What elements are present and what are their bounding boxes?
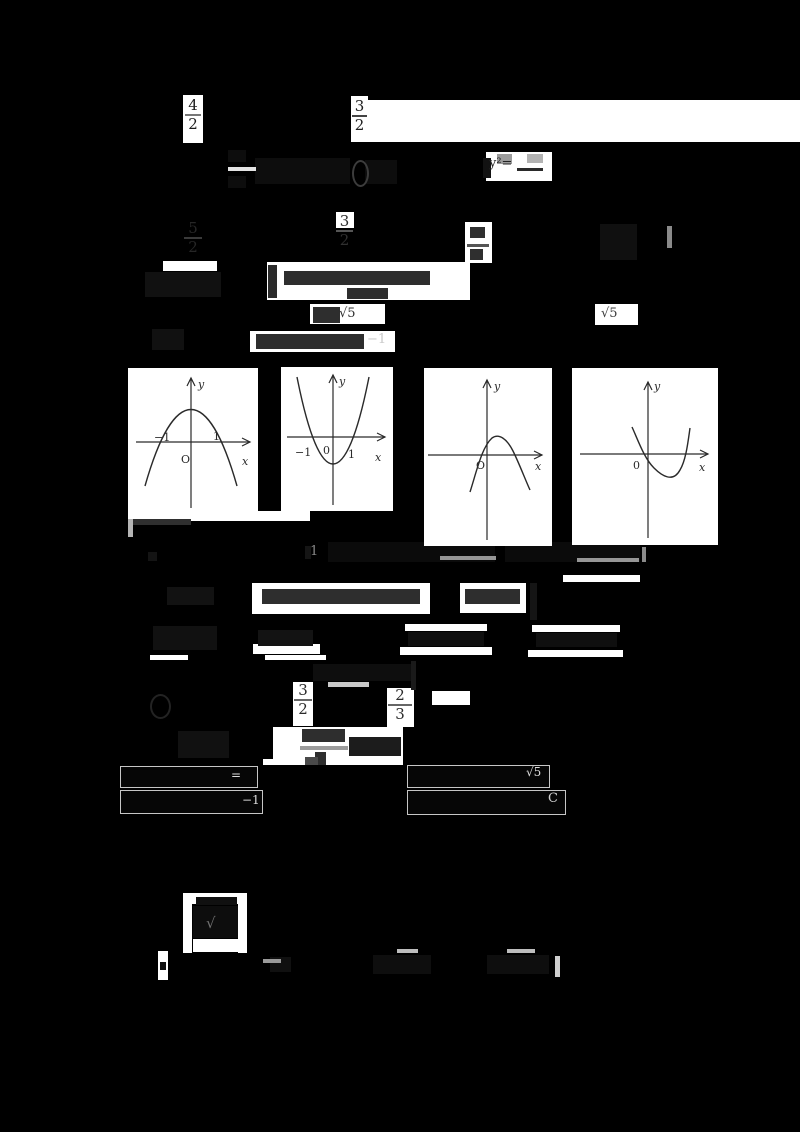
- paper-block: [183, 893, 192, 953]
- illegible-text-smudge: [487, 955, 549, 974]
- paper-block: [432, 691, 470, 705]
- illegible-text-smudge: [302, 729, 345, 742]
- fraction-denominator: 2: [298, 700, 308, 718]
- illegible-text-smudge: [600, 224, 637, 260]
- math-fragment: √: [206, 916, 216, 931]
- illegible-text-smudge: [470, 227, 485, 238]
- ink-mark: [577, 558, 639, 562]
- paper-block: [193, 939, 243, 952]
- axis-label-1: 1: [348, 448, 355, 461]
- axis-label-0: 0: [633, 459, 640, 472]
- math-fragment: √5: [601, 307, 618, 320]
- illegible-text-smudge: [160, 962, 166, 970]
- illegible-text-smudge: [536, 633, 617, 647]
- ink-mark: [467, 244, 489, 247]
- illegible-text-smudge: [313, 664, 413, 681]
- illegible-text-smudge: [255, 158, 350, 184]
- paper-block: [405, 624, 487, 631]
- fraction-3-over-2: 32: [294, 683, 312, 717]
- illegible-text-smudge: [228, 176, 246, 188]
- illegible-text-smudge: [178, 731, 229, 758]
- ink-mark: [517, 168, 543, 171]
- fraction-denominator: 2: [355, 116, 365, 134]
- graph-option-3: yxO: [424, 368, 552, 546]
- axis-label-y: y: [338, 375, 346, 388]
- math-fragment: −1: [367, 333, 386, 346]
- paper-block: [265, 655, 326, 660]
- ink-mark: [667, 226, 672, 248]
- illegible-text-smudge: [228, 150, 246, 162]
- ink-mark: [305, 757, 318, 765]
- fraction-3-over-2: 32: [336, 214, 353, 248]
- illegible-text-smudge: [470, 249, 483, 260]
- axis-label-−1: −1: [295, 446, 311, 459]
- ink-mark: [397, 949, 418, 953]
- illegible-text-smudge: [262, 589, 420, 604]
- axis-label-0: 0: [323, 444, 330, 457]
- axis-label-x: x: [375, 451, 382, 464]
- circle-mark: [352, 160, 369, 187]
- ink-mark: [555, 956, 560, 977]
- illegible-text-smudge: [145, 272, 221, 297]
- illegible-text-smudge: [530, 583, 537, 620]
- paper-block: [150, 655, 188, 660]
- math-fragment: −1: [242, 794, 260, 806]
- math-fragment: 1: [310, 545, 318, 558]
- illegible-text-smudge: [349, 737, 401, 756]
- illegible-text-smudge: [153, 626, 217, 650]
- illegible-text-smudge: [284, 271, 430, 285]
- paper-block: [532, 625, 620, 632]
- ink-mark: [527, 154, 543, 163]
- illegible-text-smudge: [347, 288, 388, 299]
- axis-label-O: O: [476, 459, 485, 472]
- fraction-denominator: 2: [188, 115, 198, 133]
- fraction-denominator: 2: [188, 238, 198, 256]
- math-fragment: C: [548, 792, 558, 805]
- axis-label-x: x: [699, 461, 706, 474]
- axis-label-y: y: [493, 380, 501, 393]
- paper-block: [263, 759, 390, 765]
- ink-mark: [440, 556, 496, 560]
- curve-cubic_min: [632, 427, 690, 477]
- ink-mark: [228, 167, 256, 171]
- ink-mark: [328, 682, 369, 687]
- illegible-text-smudge: [365, 160, 397, 184]
- illegible-text-smudge: [313, 307, 340, 323]
- fraction-numerator: 3: [340, 212, 350, 230]
- math-fragment: √5: [526, 766, 541, 778]
- answer-highlight-box: [407, 790, 566, 815]
- fraction-numerator: 3: [298, 681, 308, 699]
- paper-block: [528, 650, 623, 657]
- illegible-text-smudge: [268, 265, 277, 298]
- axis-label-1: 1: [213, 430, 220, 443]
- paper-block: [163, 261, 217, 271]
- graph-option-4: yx0: [572, 368, 718, 545]
- fraction-denominator: 3: [395, 705, 405, 723]
- circle-mark: [150, 694, 171, 719]
- fraction-2-over-3: 23: [388, 688, 412, 722]
- paper-block: [367, 100, 800, 142]
- page: 423252323223y²=√5√5−11=−1√5C√yxO−11yx−10…: [0, 0, 800, 1132]
- ink-mark: [642, 547, 646, 562]
- illegible-text-smudge: [196, 897, 237, 905]
- axis-label-y: y: [653, 380, 661, 393]
- axis-label-O: O: [181, 453, 190, 466]
- graph-option-1: yxO−11: [128, 368, 258, 519]
- ink-mark: [263, 959, 281, 963]
- illegible-text-smudge: [152, 329, 184, 350]
- illegible-text-smudge: [373, 955, 431, 974]
- ink-mark: [300, 746, 348, 750]
- illegible-text-smudge: [258, 630, 313, 646]
- illegible-text-smudge: [167, 587, 214, 605]
- fraction-numerator: 2: [395, 686, 405, 704]
- fraction-numerator: 3: [355, 97, 365, 115]
- illegible-text-smudge: [256, 334, 364, 349]
- graph-option-2: yx−101: [281, 367, 393, 511]
- axis-label-x: x: [535, 460, 542, 473]
- axis-label-y: y: [197, 378, 205, 391]
- axis-label-x: x: [242, 455, 249, 468]
- illegible-text-smudge: [148, 552, 157, 561]
- math-fragment: y²=: [489, 157, 512, 170]
- illegible-text-smudge: [408, 632, 484, 646]
- axis-label-−1: −1: [154, 431, 170, 444]
- illegible-text-smudge: [411, 661, 416, 690]
- fraction-4-over-2: 42: [185, 98, 201, 132]
- fraction-numerator: 5: [188, 219, 198, 237]
- math-fragment: =: [231, 769, 241, 781]
- fraction-3-over-2: 32: [352, 99, 367, 133]
- fraction-numerator: 4: [188, 96, 198, 114]
- illegible-text-smudge: [465, 589, 520, 604]
- ink-mark: [507, 949, 535, 953]
- fraction-denominator: 2: [340, 231, 350, 249]
- paper-block: [563, 575, 640, 582]
- math-fragment: √5: [339, 307, 356, 320]
- fraction-5-over-2: 52: [184, 221, 202, 255]
- paper-block: [400, 647, 492, 655]
